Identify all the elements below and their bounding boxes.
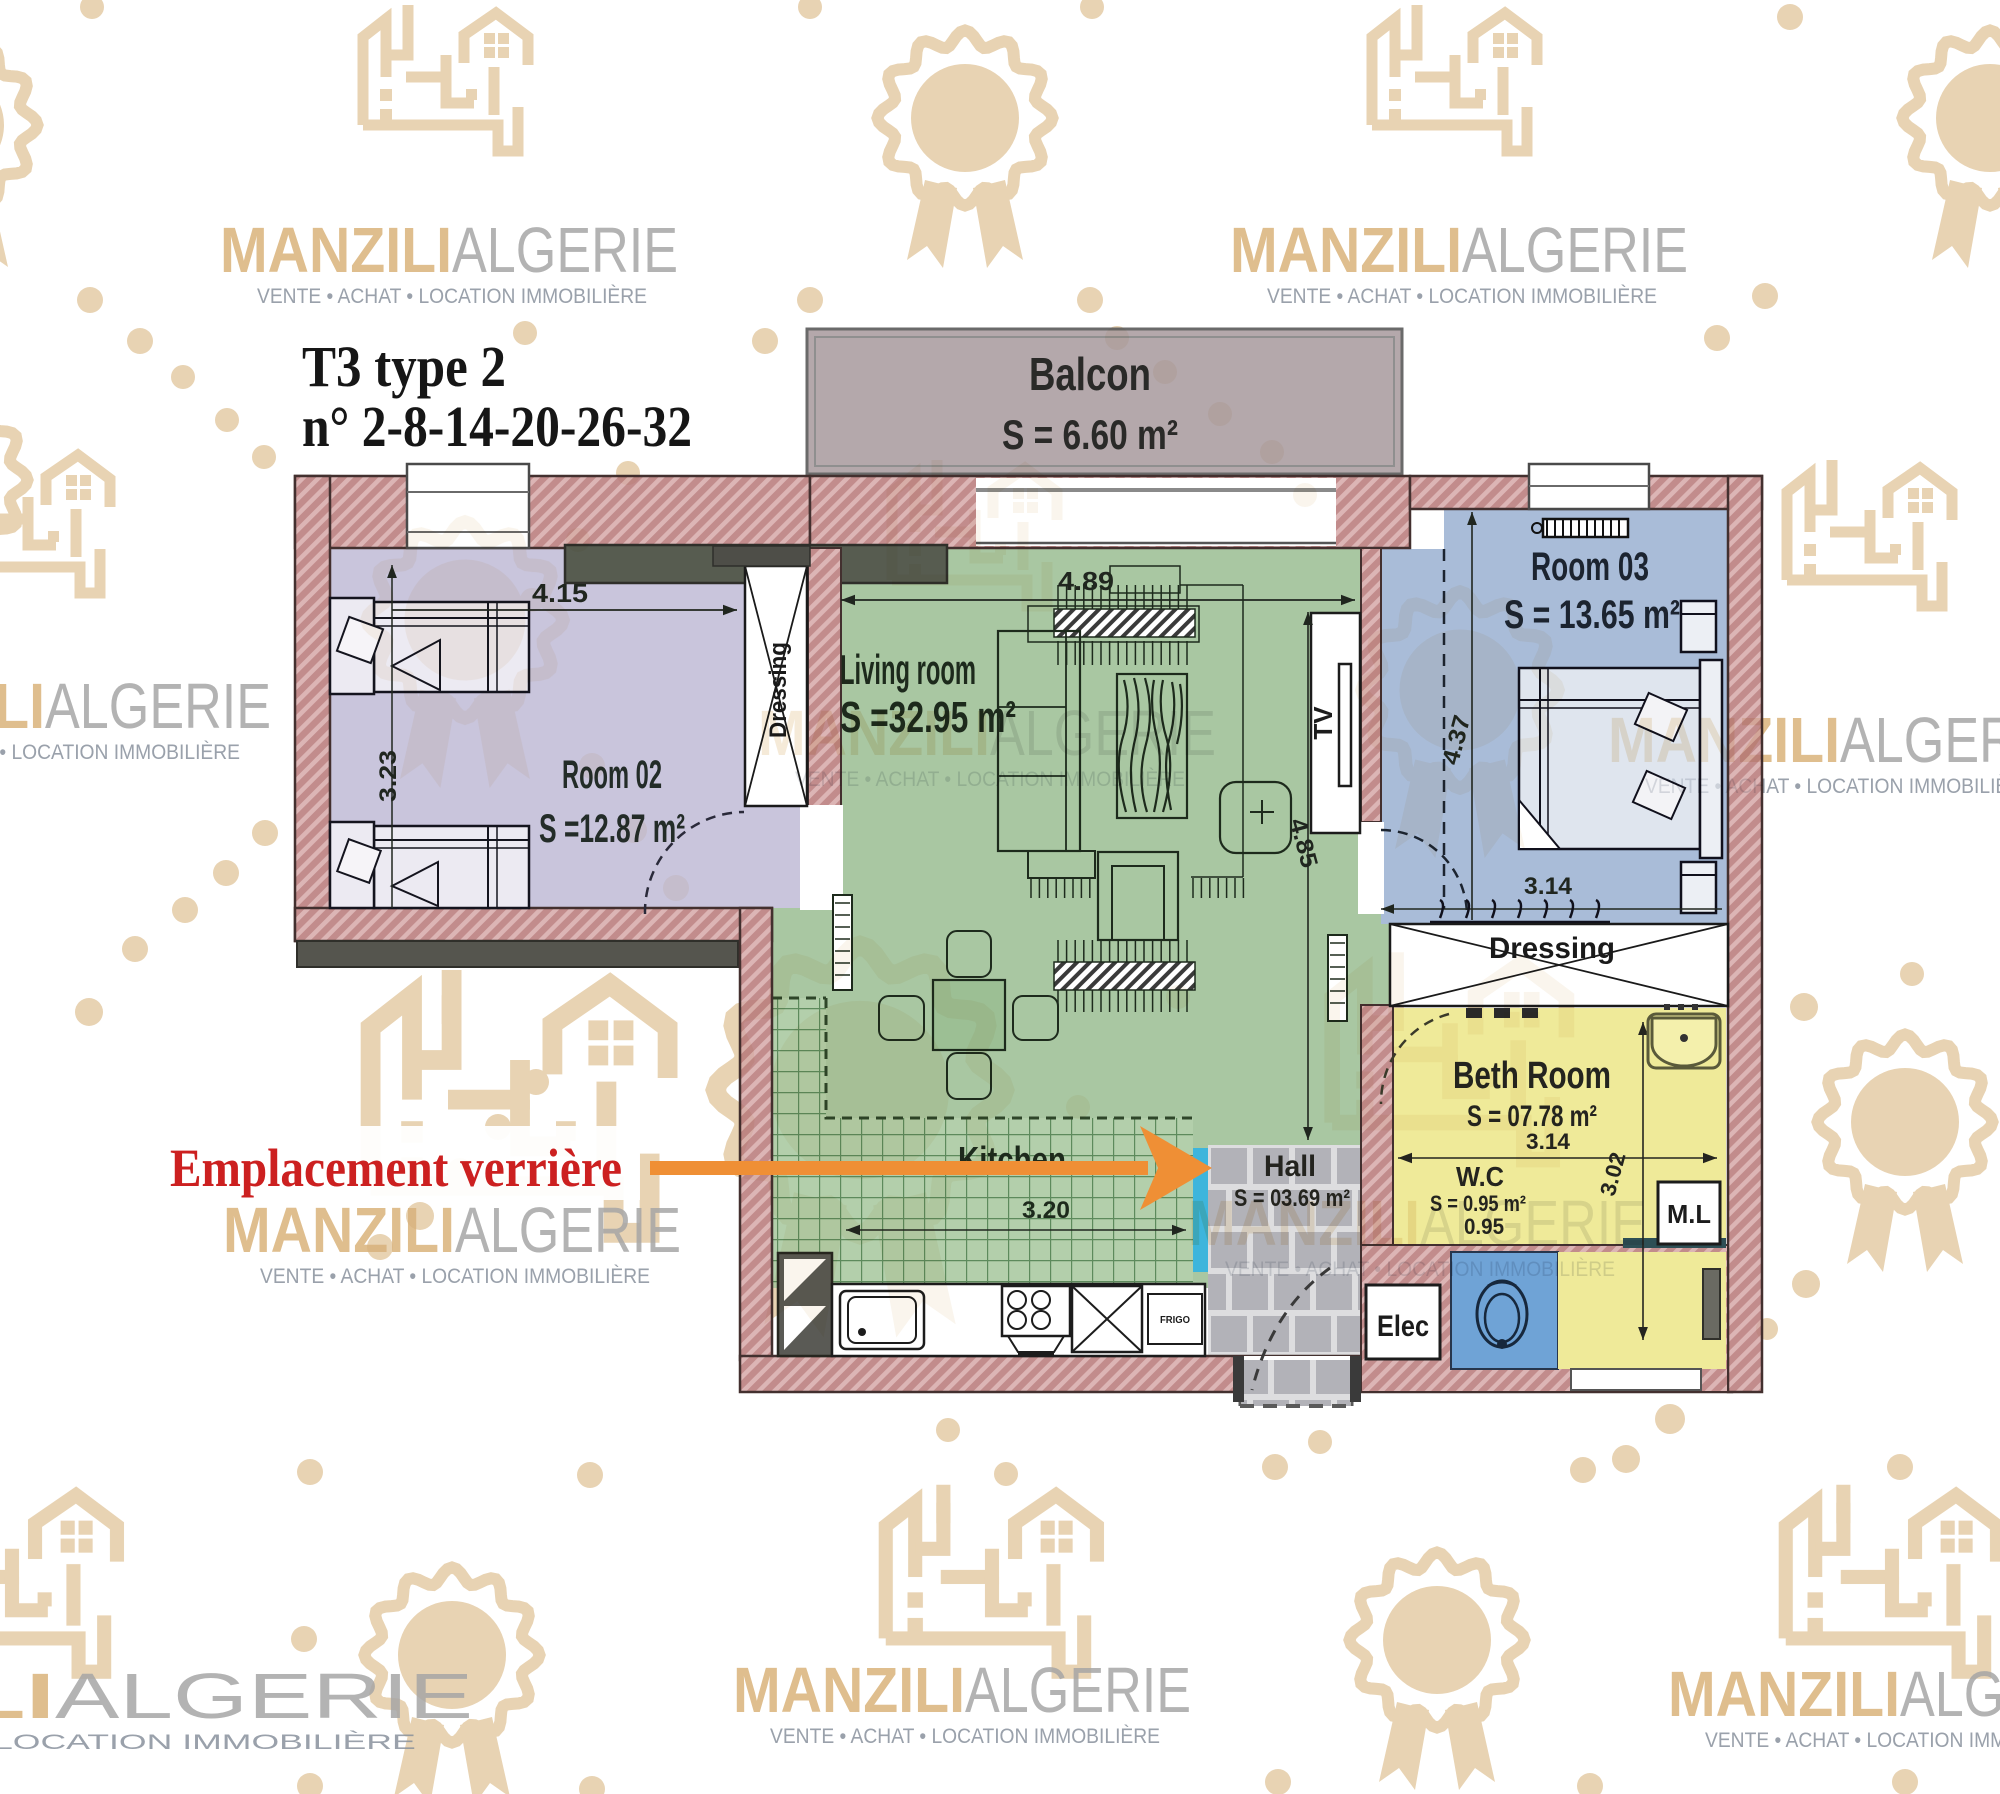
svg-text:VENTE • ACHAT • LOCATION IMMOB: VENTE • ACHAT • LOCATION IMMOBILIÈRE xyxy=(1645,775,2000,798)
svg-text:VENTE • ACHAT • LOCATION IMMOB: VENTE • ACHAT • LOCATION IMMOBILIÈRE xyxy=(1225,1258,1615,1281)
svg-text:3.20: 3.20 xyxy=(1022,1197,1070,1224)
svg-text:MANZILI: MANZILI xyxy=(220,214,452,286)
svg-text:VENTE • ACHAT • LOCATION IMMOB: VENTE • ACHAT • LOCATION IMMOBILIÈRE xyxy=(795,768,1185,791)
svg-text:ALGERIE: ALGERIE xyxy=(1462,214,1688,286)
svg-text:M.L: M.L xyxy=(1667,1199,1711,1229)
svg-text:S =12.87 m²: S =12.87 m² xyxy=(539,807,685,851)
svg-text:TV: TV xyxy=(1308,706,1338,740)
svg-text:ALGERIE: ALGERIE xyxy=(455,1194,681,1266)
svg-text:ALGERIE: ALGERIE xyxy=(1840,704,2000,776)
svg-text:Room 03: Room 03 xyxy=(1531,545,1649,589)
svg-text:MANZILI: MANZILI xyxy=(0,1660,55,1732)
svg-text:Elec: Elec xyxy=(1377,1310,1429,1343)
svg-text:ALGERIE: ALGERIE xyxy=(1900,1658,2000,1730)
svg-text:VENTE • ACHAT • LOCATION IMMOB: VENTE • ACHAT • LOCATION IMMOBILIÈRE xyxy=(0,741,240,764)
svg-text:T3 type 2: T3 type 2 xyxy=(302,334,506,399)
svg-text:ALGERIE: ALGERIE xyxy=(1420,1187,1646,1259)
svg-text:VENTE • ACHAT • LOCATION IMMOB: VENTE • ACHAT • LOCATION IMMOBILIÈRE xyxy=(260,1265,650,1288)
svg-text:Living room: Living room xyxy=(840,646,976,693)
svg-text:n° 2-8-14-20-26-32: n° 2-8-14-20-26-32 xyxy=(302,394,692,459)
svg-text:Room 02: Room 02 xyxy=(562,753,662,797)
svg-text:MANZILI: MANZILI xyxy=(0,670,45,742)
svg-text:VENTE • ACHAT • LOCATION IMMOB: VENTE • ACHAT • LOCATION IMMOBILIÈRE xyxy=(0,1731,416,1754)
svg-text:MANZILI: MANZILI xyxy=(1668,1658,1900,1730)
svg-text:Emplacement verrière: Emplacement verrière xyxy=(170,1138,622,1198)
svg-text:MANZILI: MANZILI xyxy=(1608,704,1840,776)
svg-text:ALGERIE: ALGERIE xyxy=(965,1654,1191,1726)
svg-text:VENTE • ACHAT • LOCATION IMMOB: VENTE • ACHAT • LOCATION IMMOBILIÈRE xyxy=(770,1725,1160,1748)
svg-text:ALGERIE: ALGERIE xyxy=(45,670,271,742)
svg-text:ALGERIE: ALGERIE xyxy=(452,214,678,286)
svg-text:3.14: 3.14 xyxy=(1524,873,1573,900)
svg-text:ALGERIE: ALGERIE xyxy=(55,1660,473,1732)
svg-text:FRIGO: FRIGO xyxy=(1160,1315,1190,1326)
svg-text:ALGERIE: ALGERIE xyxy=(990,697,1216,769)
svg-text:MANZILI: MANZILI xyxy=(223,1194,455,1266)
svg-text:VENTE • ACHAT • LOCATION IMMOB: VENTE • ACHAT • LOCATION IMMOBILIÈRE xyxy=(1267,285,1657,308)
svg-text:MANZILI: MANZILI xyxy=(758,697,990,769)
svg-text:MANZILI: MANZILI xyxy=(1188,1187,1420,1259)
svg-text:Dressing: Dressing xyxy=(1489,932,1615,965)
svg-text:VENTE • ACHAT • LOCATION IMMOB: VENTE • ACHAT • LOCATION IMMOBILIÈRE xyxy=(1705,1729,2000,1752)
svg-text:Hall: Hall xyxy=(1264,1150,1316,1183)
svg-text:VENTE • ACHAT • LOCATION IMMOB: VENTE • ACHAT • LOCATION IMMOBILIÈRE xyxy=(257,285,647,308)
svg-text:MANZILI: MANZILI xyxy=(1230,214,1462,286)
svg-text:MANZILI: MANZILI xyxy=(733,1654,965,1726)
svg-text:S = 6.60 m²: S = 6.60 m² xyxy=(1002,411,1178,458)
svg-text:Balcon: Balcon xyxy=(1029,348,1151,400)
svg-text:3.23: 3.23 xyxy=(375,750,402,802)
